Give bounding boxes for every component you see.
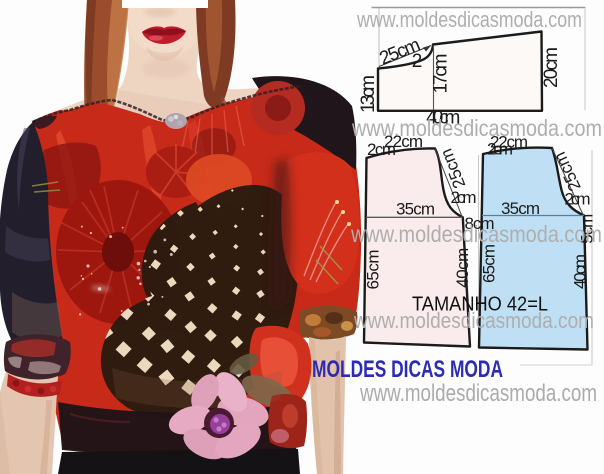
svg-text:2cm: 2cm xyxy=(451,188,477,207)
svg-text:65cm: 65cm xyxy=(480,244,499,283)
svg-text:2: 2 xyxy=(412,51,423,72)
svg-text:2cm: 2cm xyxy=(367,140,396,159)
svg-text:www.moldesdicasmoda.com: www.moldesdicasmoda.com xyxy=(359,380,597,407)
svg-text:17cm: 17cm xyxy=(431,54,452,94)
svg-text:www.moldesdicasmoda.com: www.moldesdicasmoda.com xyxy=(356,7,582,32)
svg-text:20cm: 20cm xyxy=(541,47,562,88)
svg-text:35cm: 35cm xyxy=(396,200,435,219)
svg-text:2cm: 2cm xyxy=(565,190,591,209)
svg-text:65cm: 65cm xyxy=(364,250,383,290)
svg-text:13cm: 13cm xyxy=(358,75,379,113)
svg-text:MOLDES DICAS MODA: MOLDES DICAS MODA xyxy=(312,356,503,383)
svg-text:40cm: 40cm xyxy=(571,254,590,289)
svg-text:35cm: 35cm xyxy=(501,199,540,218)
svg-text:40cm: 40cm xyxy=(453,248,472,288)
svg-text:www.moldesdicasmoda.com: www.moldesdicasmoda.com xyxy=(350,221,602,247)
svg-text:www.moldesdicasmoda.com: www.moldesdicasmoda.com xyxy=(353,308,594,333)
svg-text:2cm: 2cm xyxy=(487,140,513,159)
